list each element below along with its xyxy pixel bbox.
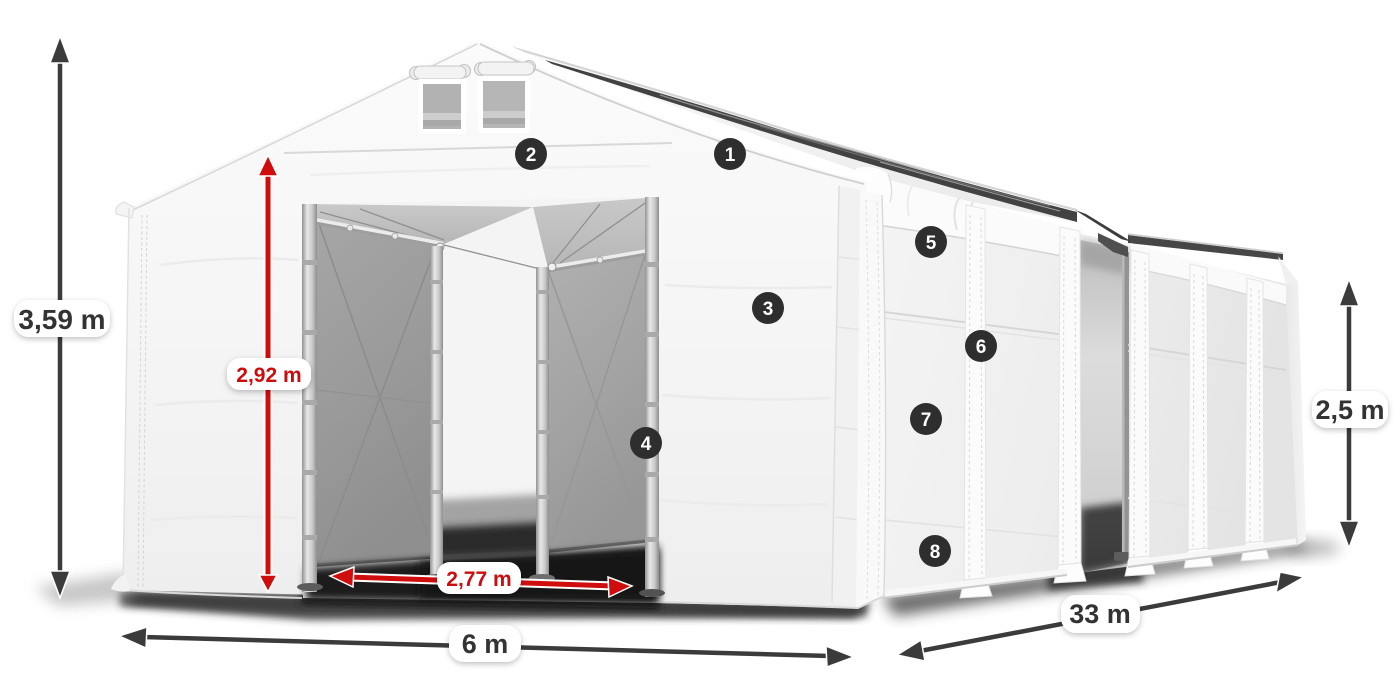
svg-text:4: 4 <box>641 434 652 455</box>
svg-text:6 m: 6 m <box>462 629 509 659</box>
svg-text:2,92 m: 2,92 m <box>236 364 301 387</box>
svg-text:8: 8 <box>930 542 941 563</box>
svg-text:3,59 m: 3,59 m <box>18 304 105 335</box>
svg-text:2,77 m: 2,77 m <box>446 568 511 591</box>
svg-text:1: 1 <box>725 145 736 166</box>
svg-text:5: 5 <box>926 233 937 254</box>
svg-text:7: 7 <box>921 410 932 431</box>
svg-text:2: 2 <box>526 145 537 166</box>
svg-text:33 m: 33 m <box>1069 599 1131 629</box>
svg-text:6: 6 <box>976 337 987 358</box>
svg-text:2,5 m: 2,5 m <box>1315 395 1384 425</box>
svg-text:3: 3 <box>763 299 774 320</box>
